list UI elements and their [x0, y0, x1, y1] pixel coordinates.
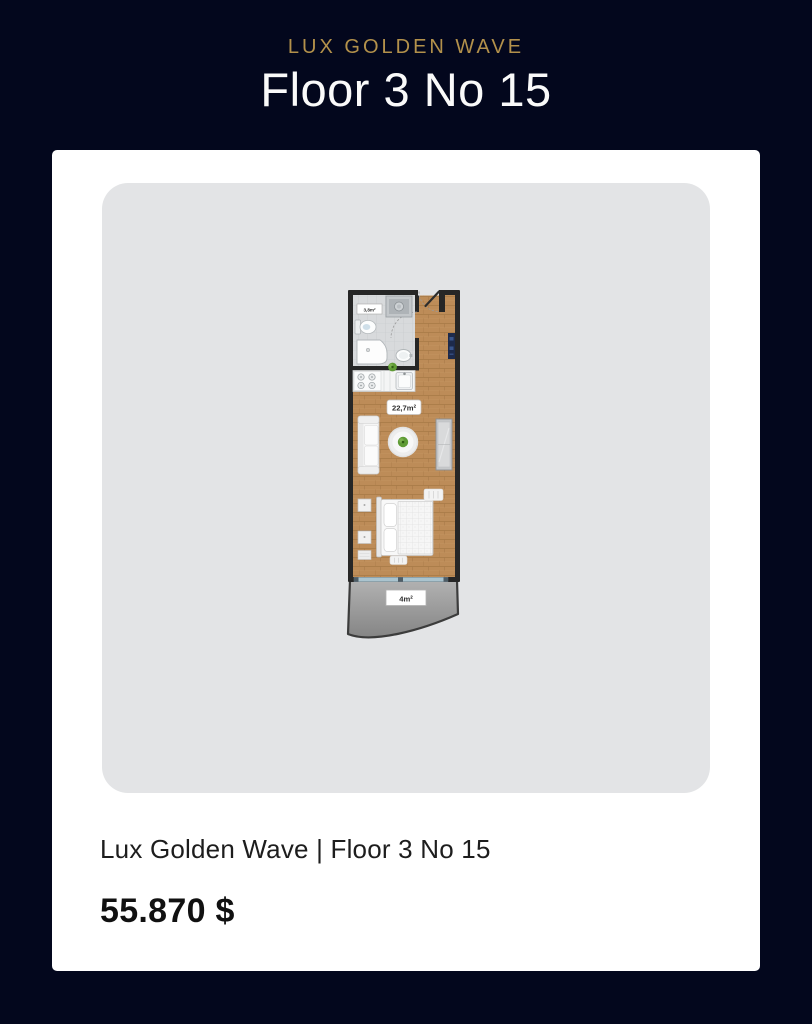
bathroom-area-label: 3,8m² [363, 307, 375, 312]
balcony: 4m² [348, 580, 458, 637]
toilet-icon [355, 320, 376, 334]
page-title: Floor 3 No 15 [0, 66, 812, 113]
floor-plan-panel: 4m² [102, 183, 710, 793]
living-area-label: 22,7m² [392, 403, 417, 412]
kitchen-sink-icon [396, 373, 413, 390]
page-background: LUX GOLDEN WAVE Floor 3 No 15 [0, 0, 812, 1024]
wardrobe-icon [436, 419, 452, 470]
bathroom: 3,8m² [353, 295, 419, 371]
plant-icon [398, 437, 408, 447]
small-rug [424, 489, 443, 501]
bench-icon [358, 551, 371, 560]
small-rug [390, 556, 407, 565]
brand-title: LUX GOLDEN WAVE [0, 36, 812, 59]
shower-icon [357, 340, 387, 364]
round-rug [389, 428, 418, 457]
entry-marker [448, 333, 455, 359]
counter-plant-icon [388, 363, 397, 372]
listing-price: 55.870 $ [100, 892, 235, 931]
page-header: LUX GOLDEN WAVE Floor 3 No 15 [0, 36, 812, 113]
bed-icon [377, 497, 434, 557]
balcony-glass-door [354, 577, 448, 581]
listing-card[interactable]: 4m² [52, 150, 760, 971]
nightstand-icon [358, 531, 371, 544]
sofa-icon [358, 416, 379, 474]
washing-machine-icon [386, 296, 412, 317]
balcony-area-label: 4m² [399, 594, 413, 603]
nightstand-icon [358, 499, 371, 512]
stove-icon [354, 372, 381, 391]
apartment-floor-plan: 4m² [340, 278, 470, 646]
listing-caption: Lux Golden Wave | Floor 3 No 15 [100, 834, 491, 865]
living-room-area: 22,7m² [387, 400, 421, 415]
